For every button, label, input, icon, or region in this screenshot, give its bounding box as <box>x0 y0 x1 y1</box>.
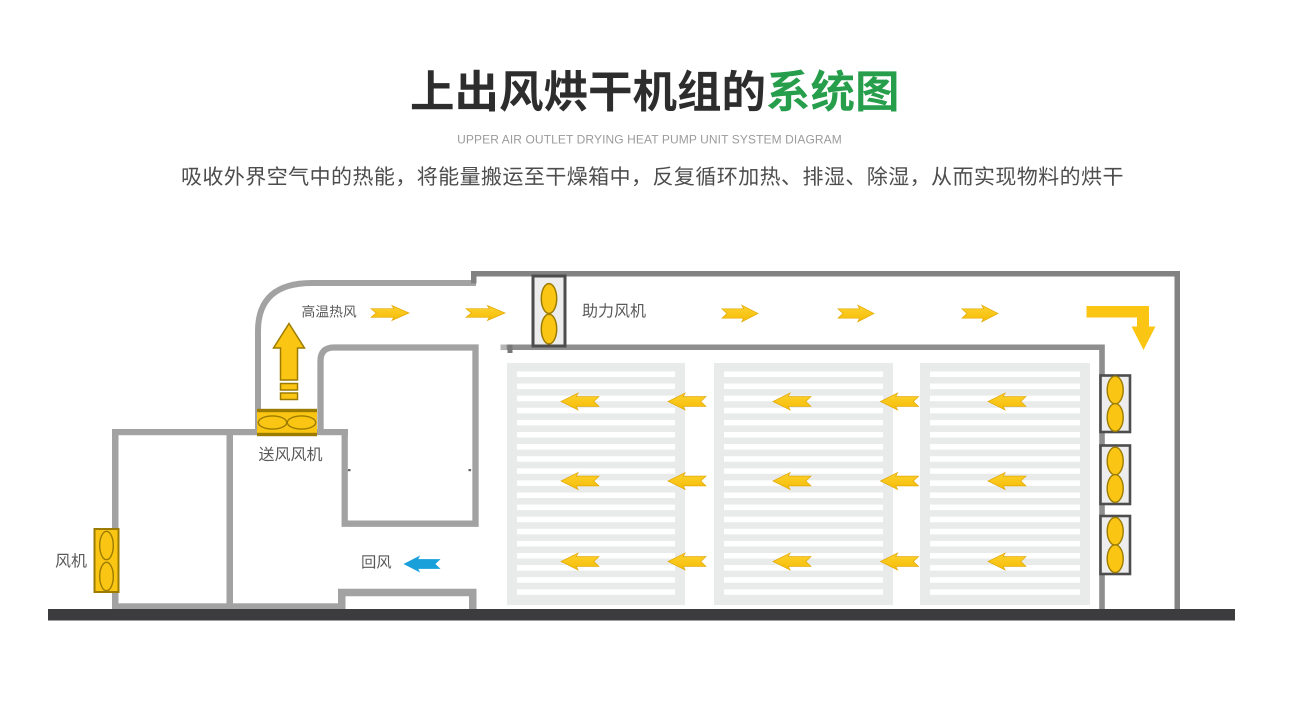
svg-text:UPPER AIR OUTLET DRYING HEAT P: UPPER AIR OUTLET DRYING HEAT PUMP UNIT S… <box>457 133 842 147</box>
